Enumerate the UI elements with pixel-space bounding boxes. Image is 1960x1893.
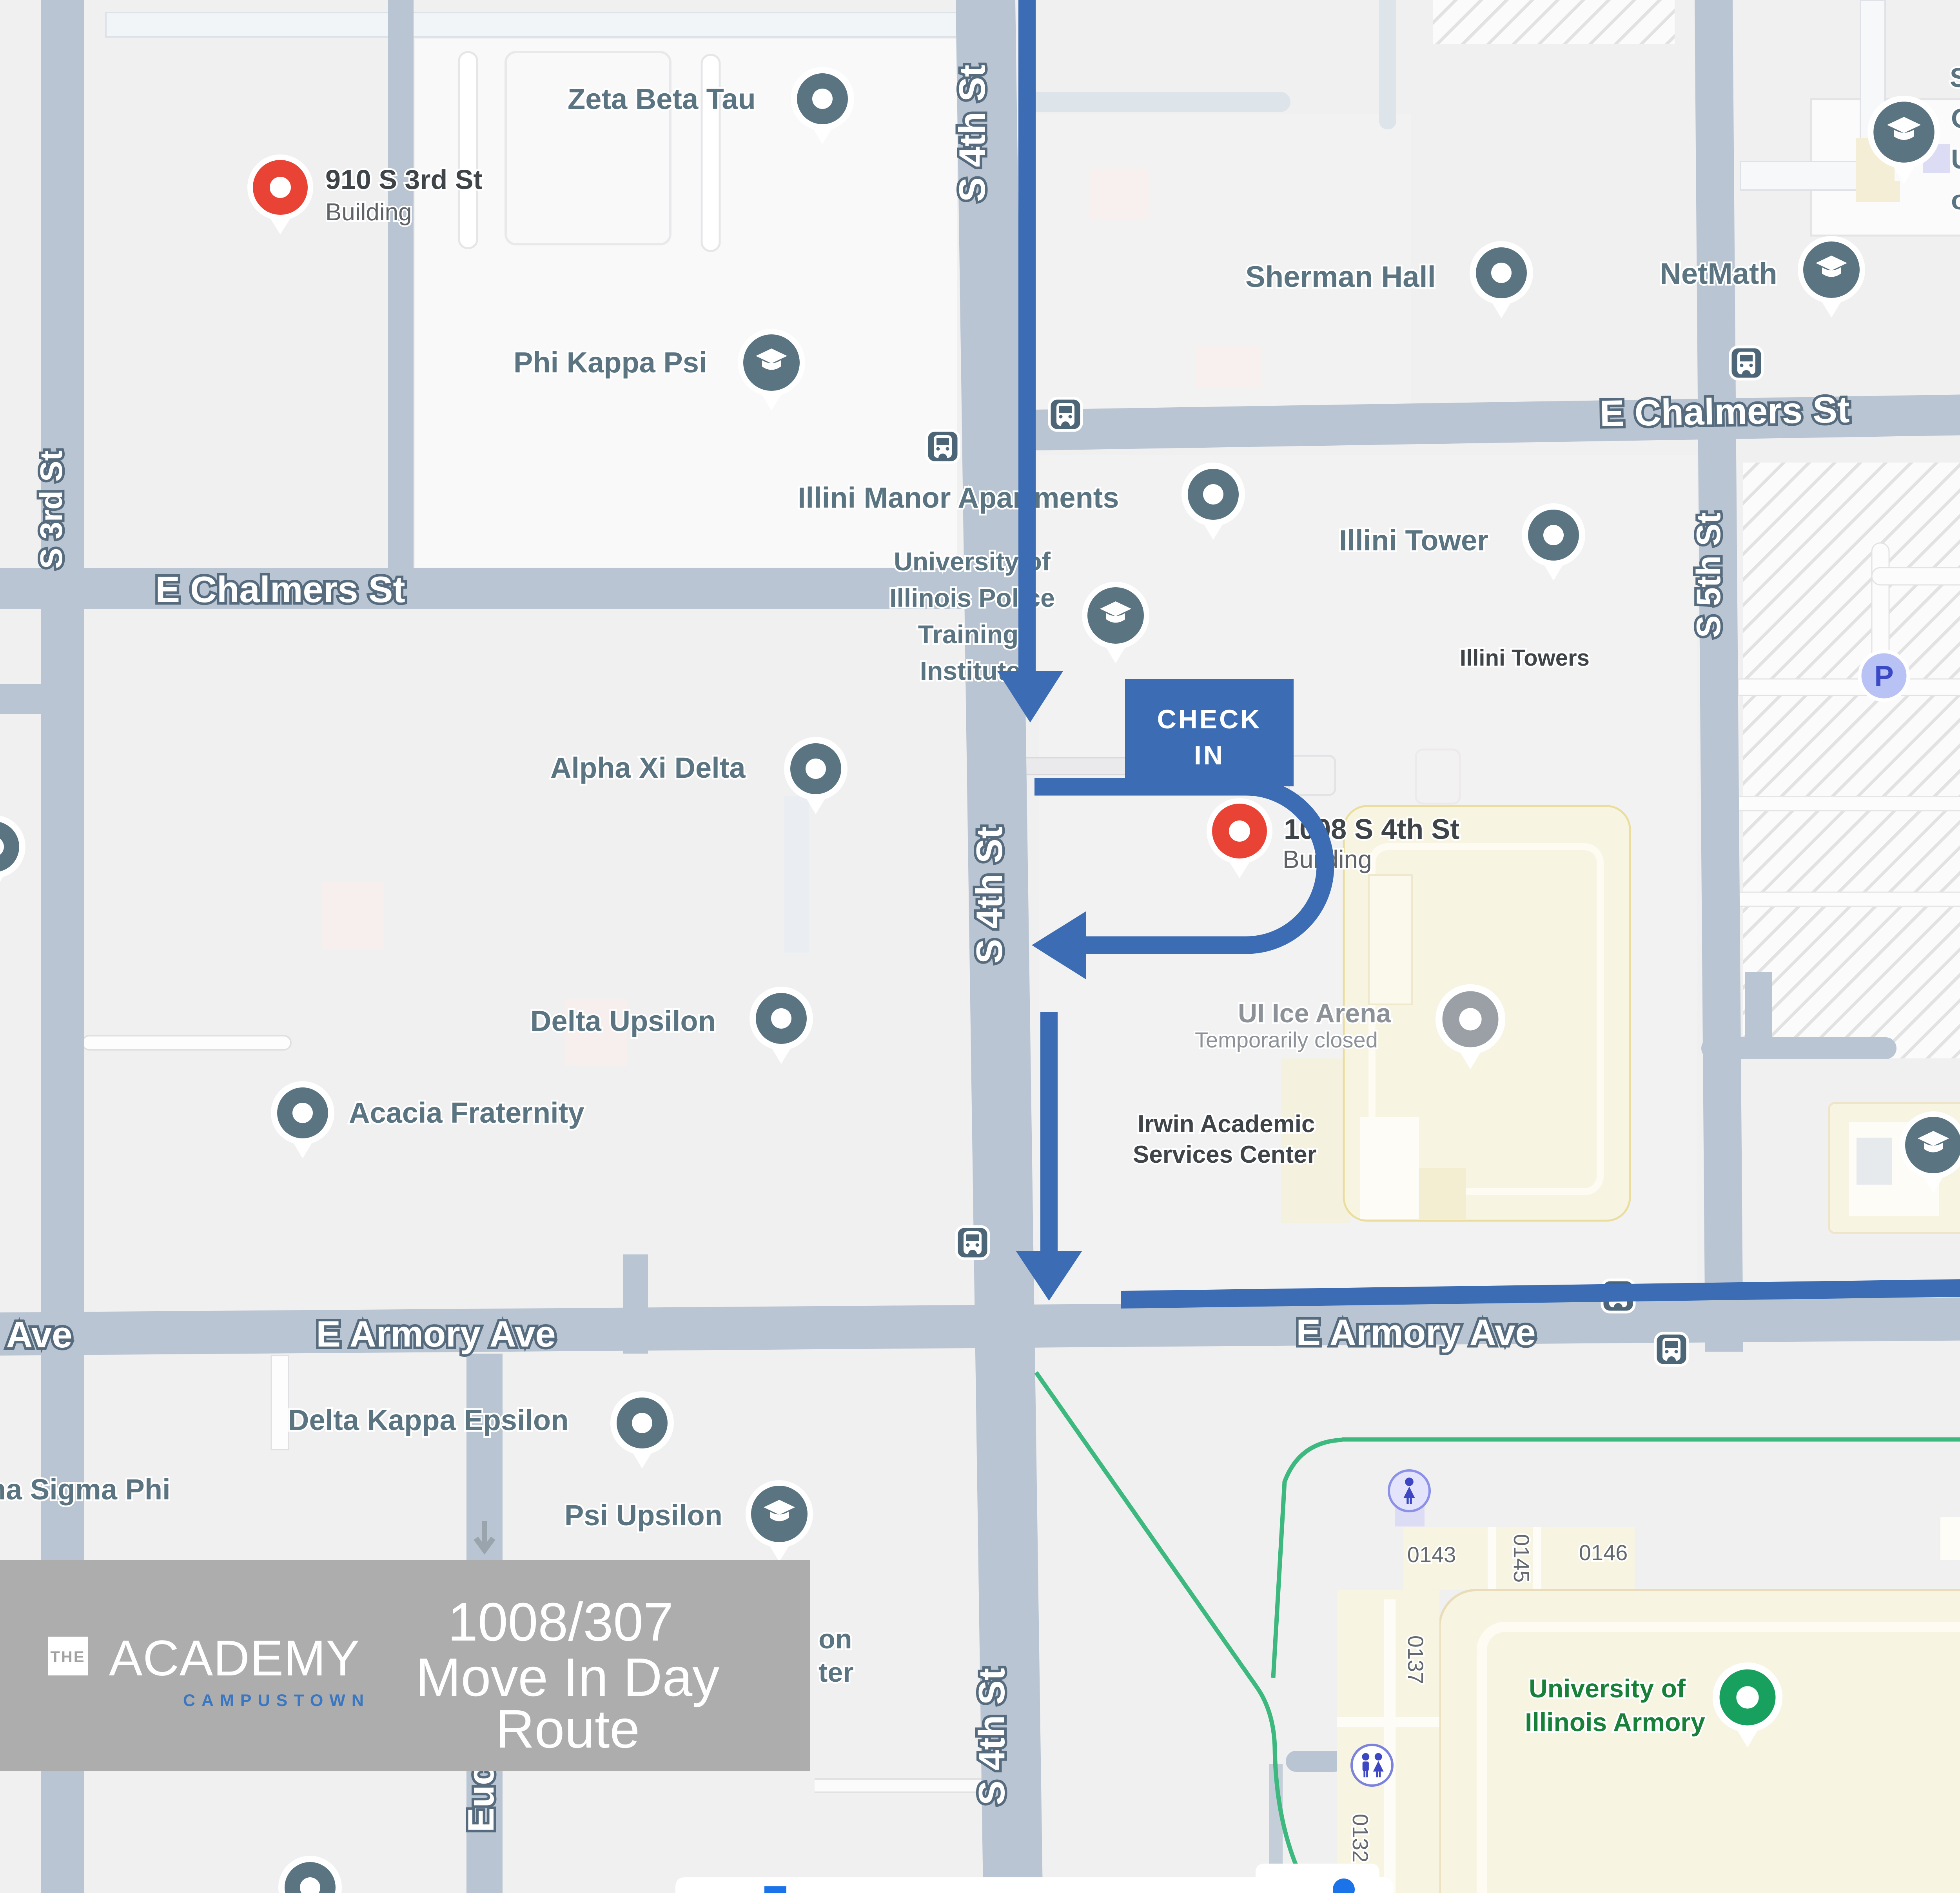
svg-text:Illinois Armory: Illinois Armory [1525, 1708, 1705, 1737]
svg-text:E Chalmers St: E Chalmers St [1599, 389, 1850, 434]
svg-text:CHECK: CHECK [1157, 704, 1262, 734]
svg-text:NetMath: NetMath [1660, 257, 1777, 290]
svg-text:S 4th St: S 4th St [969, 826, 1010, 964]
svg-text:0132: 0132 [1348, 1814, 1373, 1863]
svg-text:910 S 3rd St: 910 S 3rd St [325, 164, 483, 195]
svg-text:Route: Route [495, 1699, 640, 1759]
svg-text:S 4th St: S 4th St [971, 1668, 1012, 1805]
svg-text:Alpha Xi Delta: Alpha Xi Delta [550, 751, 746, 784]
svg-text:ACADEMY: ACADEMY [109, 1630, 360, 1686]
svg-text:Illini Manor Apartments: Illini Manor Apartments [798, 481, 1119, 514]
svg-text:of Illinois: of Illinois [1951, 185, 1960, 215]
svg-text:Building: Building [325, 199, 412, 226]
svg-text:S 4th St: S 4th St [951, 65, 993, 202]
svg-text:Sherman Hall: Sherman Hall [1245, 260, 1436, 294]
svg-text:ter: ter [818, 1657, 853, 1688]
svg-text:on: on [818, 1624, 852, 1654]
svg-text:0143: 0143 [1407, 1542, 1456, 1567]
svg-text:Delta Upsilon: Delta Upsilon [530, 1005, 716, 1037]
svg-text:ha Sigma Phi: ha Sigma Phi [0, 1473, 171, 1506]
svg-text:Irwin Academic: Irwin Academic [1138, 1111, 1315, 1138]
svg-text:E Armory Ave: E Armory Ave [316, 1313, 555, 1354]
svg-text:UI Ice Arena: UI Ice Arena [1238, 998, 1392, 1028]
svg-text:THE: THE [51, 1648, 85, 1666]
svg-text:Zeta Beta Tau: Zeta Beta Tau [568, 83, 756, 115]
svg-text:0146: 0146 [1579, 1540, 1628, 1565]
svg-text:CAMPUSTOWN: CAMPUSTOWN [183, 1691, 370, 1710]
svg-text:Temporarily closed: Temporarily closed [1195, 1027, 1378, 1052]
svg-text:S 5th St: S 5th St [1690, 512, 1728, 638]
svg-text:Services Center: Services Center [1133, 1141, 1317, 1168]
svg-text:Illini Tower: Illini Tower [1339, 524, 1488, 557]
svg-text:Illini Towers: Illini Towers [1460, 645, 1590, 671]
svg-text:Offices at the: Offices at the [1951, 103, 1960, 134]
svg-text:Psi Upsilon: Psi Upsilon [564, 1499, 722, 1532]
svg-text:Phi Kappa Psi: Phi Kappa Psi [514, 346, 707, 379]
svg-text:University: University [1951, 144, 1960, 174]
svg-text:E Chalmers St: E Chalmers St [155, 569, 405, 610]
svg-text:University of: University of [1529, 1674, 1686, 1703]
svg-text:IN: IN [1194, 741, 1225, 770]
svg-text:Acacia Fraternity: Acacia Fraternity [349, 1096, 584, 1129]
svg-text:Ave: Ave [6, 1314, 73, 1355]
svg-text:1008/307: 1008/307 [448, 1592, 673, 1652]
svg-text:E Armory Ave: E Armory Ave [1296, 1312, 1535, 1353]
svg-text:Delta Kappa Epsilon: Delta Kappa Epsilon [288, 1404, 568, 1436]
svg-text:Study Abroad: Study Abroad [1950, 62, 1960, 93]
svg-text:Move In Day: Move In Day [416, 1647, 720, 1708]
svg-text:0145: 0145 [1509, 1534, 1534, 1583]
svg-text:0137: 0137 [1403, 1635, 1428, 1684]
svg-text:Training: Training [918, 620, 1019, 649]
svg-text:S 3rd St: S 3rd St [34, 450, 69, 569]
